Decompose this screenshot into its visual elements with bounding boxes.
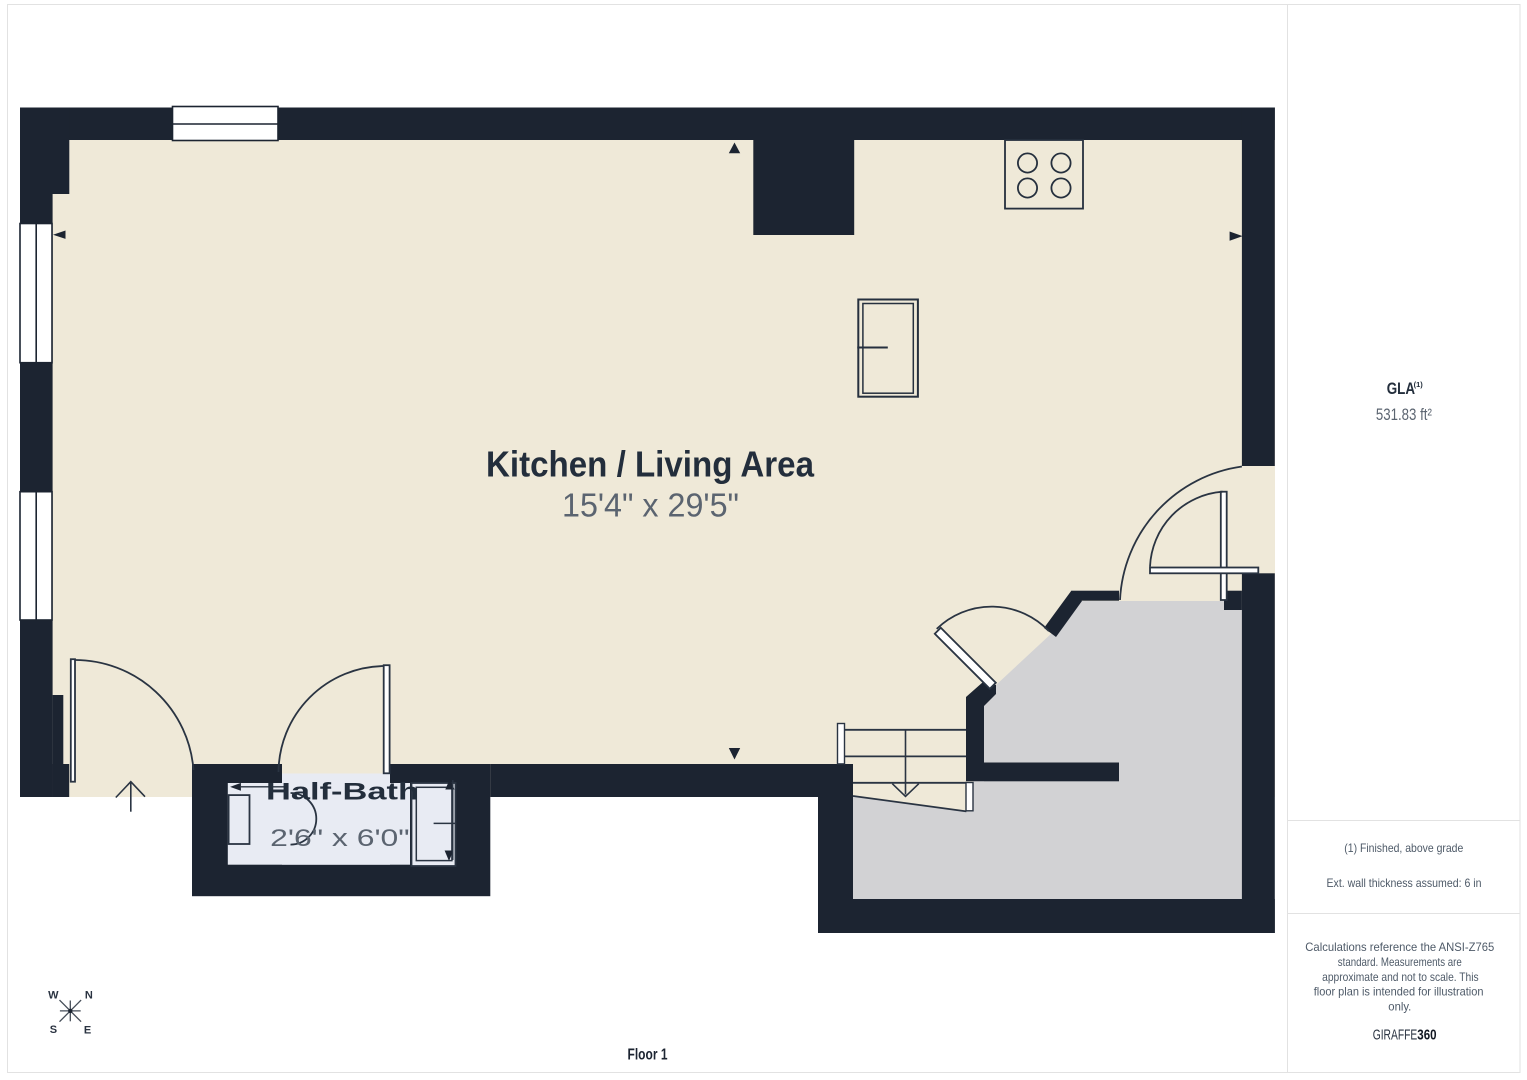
svg-text:531.83 ft²: 531.83 ft² xyxy=(1376,406,1432,424)
svg-text:approximate and not to scale.: approximate and not to scale. This xyxy=(1322,970,1479,984)
svg-text:only.: only. xyxy=(1388,999,1411,1013)
svg-text:S: S xyxy=(50,1024,57,1036)
svg-text:(1): (1) xyxy=(1414,380,1424,389)
svg-text:Ext. wall thickness assumed: 6: Ext. wall thickness assumed: 6 in xyxy=(1327,876,1482,890)
svg-text:GLA: GLA xyxy=(1387,380,1415,398)
svg-text:floor plan is intended for ill: floor plan is intended for illustration xyxy=(1314,985,1484,999)
svg-text:N: N xyxy=(85,990,93,1002)
svg-text:(1) Finished, above grade: (1) Finished, above grade xyxy=(1344,841,1463,855)
svg-text:360: 360 xyxy=(1417,1027,1436,1043)
svg-text:Kitchen / Living Area: Kitchen / Living Area xyxy=(486,443,815,484)
svg-text:GIRAFFE: GIRAFFE xyxy=(1373,1027,1418,1043)
svg-text:2'6" x 6'0": 2'6" x 6'0" xyxy=(270,825,410,852)
svg-text:Floor 1: Floor 1 xyxy=(628,1047,668,1064)
svg-text:Calculations reference the ANS: Calculations reference the ANSI-Z765 xyxy=(1305,940,1494,954)
svg-text:W: W xyxy=(48,990,59,1002)
svg-text:Half-Bath: Half-Bath xyxy=(266,779,419,806)
svg-text:standard. Measurements are: standard. Measurements are xyxy=(1338,955,1462,969)
svg-text:15'4" x 29'5": 15'4" x 29'5" xyxy=(562,486,739,523)
svg-text:E: E xyxy=(84,1024,91,1036)
